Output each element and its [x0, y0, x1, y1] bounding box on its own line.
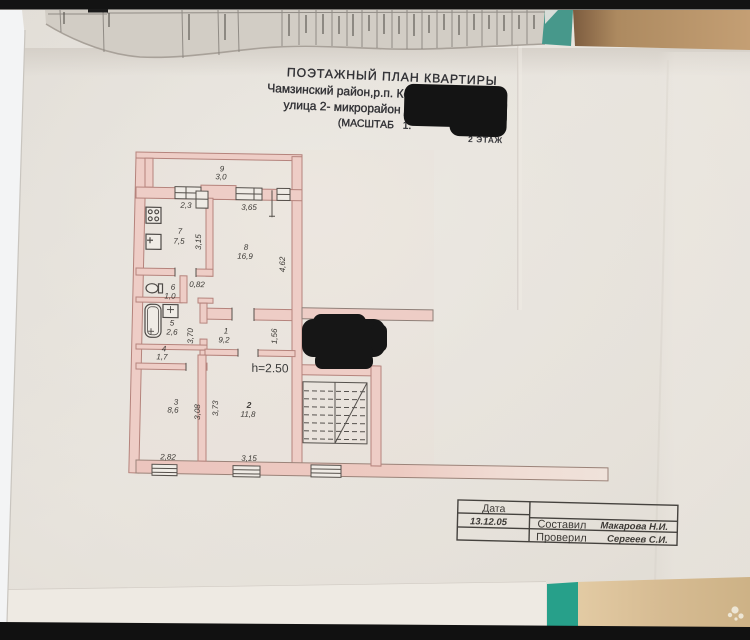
svg-text:8,6: 8,6: [167, 406, 179, 415]
svg-text:3,73: 3,73: [211, 400, 220, 416]
svg-text:2: 2: [246, 400, 252, 410]
svg-text:9,2: 9,2: [218, 335, 230, 344]
svg-text:2,6: 2,6: [165, 327, 178, 336]
svg-text:Дата: Дата: [482, 503, 506, 516]
svg-text:2,3: 2,3: [179, 201, 192, 210]
svg-text:2,82: 2,82: [159, 452, 176, 461]
svg-text:7,5: 7,5: [173, 237, 185, 246]
svg-text:Проверил: Проверил: [536, 531, 587, 544]
svg-text:16,9: 16,9: [237, 252, 253, 261]
svg-text:3,08: 3,08: [193, 404, 202, 420]
svg-text:5: 5: [170, 319, 175, 328]
svg-text:Макарова Н.И.: Макарова Н.И.: [600, 520, 668, 533]
svg-text:3,0: 3,0: [215, 172, 227, 181]
svg-text:1: 1: [224, 326, 228, 335]
svg-text:0,82: 0,82: [189, 280, 205, 289]
svg-text:3,65: 3,65: [241, 203, 257, 212]
svg-text:3,15: 3,15: [194, 234, 203, 250]
svg-text:4,62: 4,62: [278, 256, 287, 272]
svg-text:7: 7: [178, 227, 183, 236]
svg-text:Составил: Составил: [537, 518, 586, 531]
svg-text:1,7: 1,7: [156, 352, 168, 361]
svg-text:Сергеев С.И.: Сергеев С.И.: [607, 534, 668, 546]
svg-text:3,70: 3,70: [186, 327, 195, 343]
svg-text:6: 6: [171, 283, 176, 292]
svg-text:13.12.05: 13.12.05: [470, 516, 508, 528]
svg-text:1,56: 1,56: [270, 328, 279, 344]
svg-text:1,0: 1,0: [164, 291, 176, 300]
svg-text:3,15: 3,15: [241, 454, 257, 463]
svg-text:h=2.50: h=2.50: [251, 361, 288, 376]
svg-text:8: 8: [244, 243, 249, 252]
svg-text:11,8: 11,8: [241, 410, 257, 419]
